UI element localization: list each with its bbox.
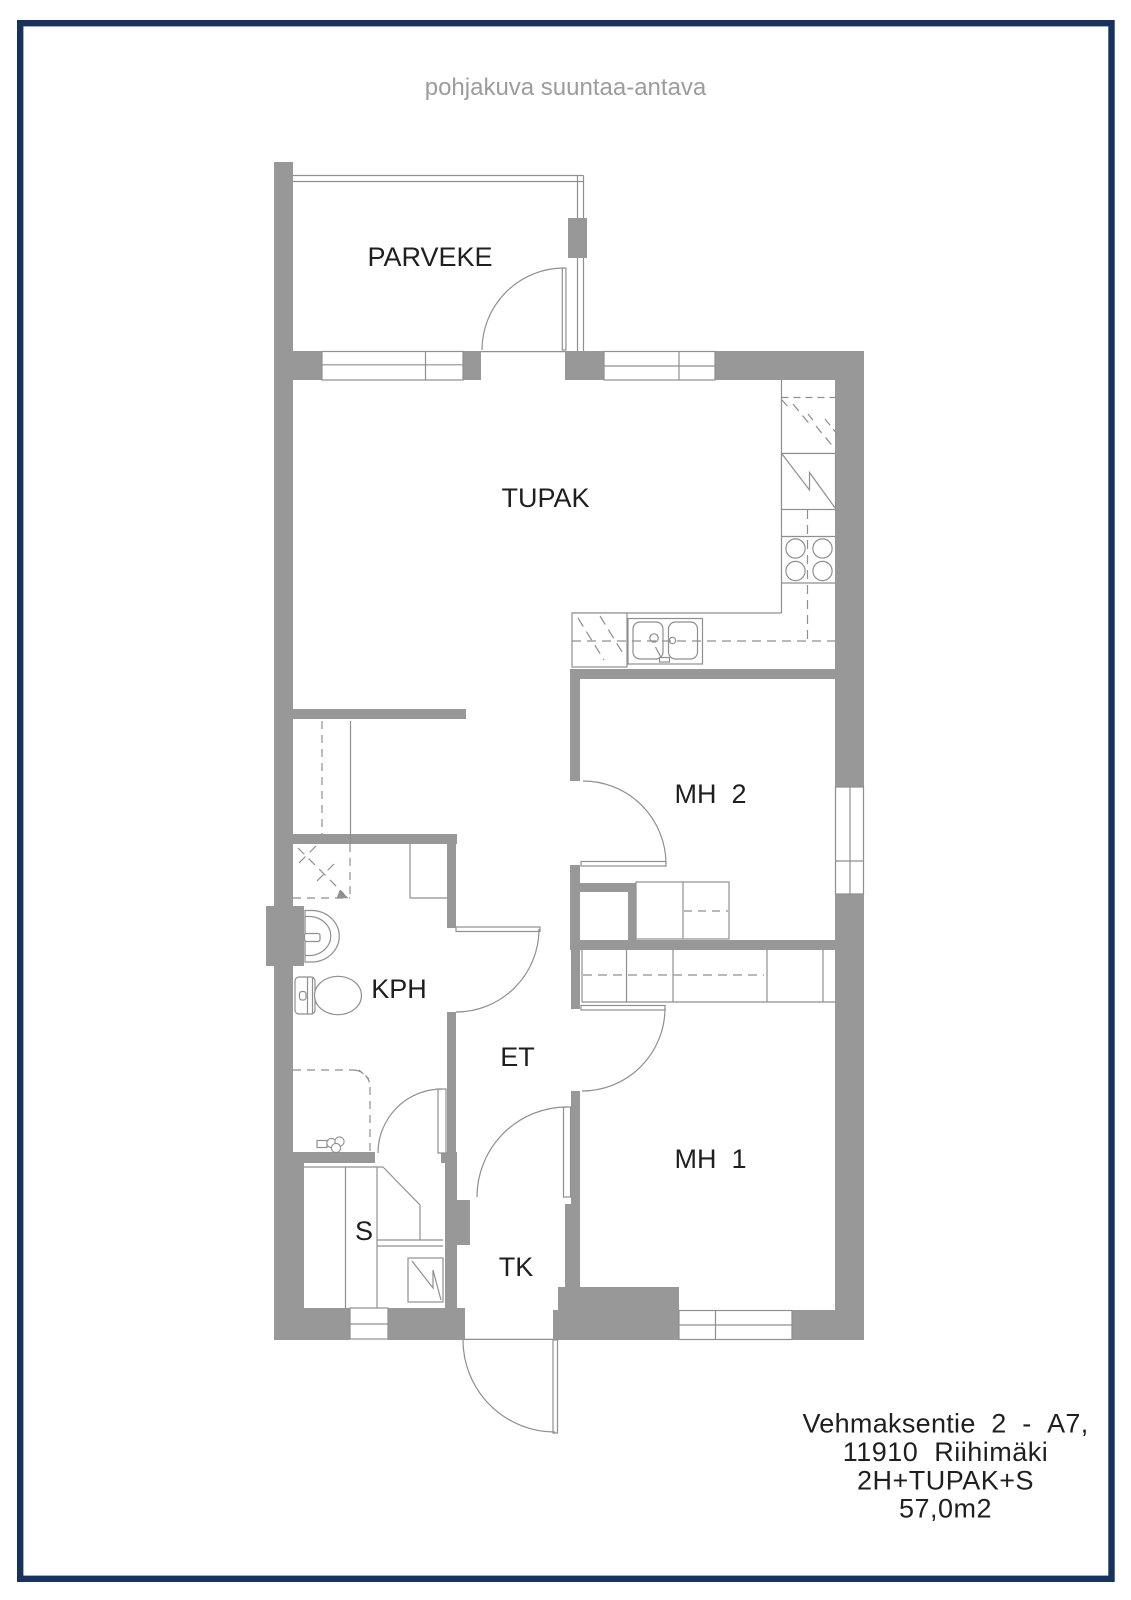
svg-text:TUPAK: TUPAK [501,483,589,513]
svg-text:KPH: KPH [371,974,427,1004]
svg-text:TK: TK [499,1252,534,1282]
svg-text:MH 2: MH 2 [674,779,746,809]
svg-text:2H+TUPAK+S: 2H+TUPAK+S [857,1466,1034,1496]
svg-text:S: S [355,1216,373,1246]
svg-text:pohjakuva suuntaa-antava: pohjakuva suuntaa-antava [425,74,707,101]
svg-text:Vehmaksentie 2 - A7,: Vehmaksentie 2 - A7, [802,1409,1088,1439]
svg-text:MH 1: MH 1 [674,1144,746,1174]
svg-text:57,0m2: 57,0m2 [899,1494,992,1524]
svg-text:PARVEKE: PARVEKE [367,242,492,272]
svg-text:ET: ET [500,1042,535,1072]
svg-text:11910 Riihimäki: 11910 Riihimäki [843,1437,1049,1467]
